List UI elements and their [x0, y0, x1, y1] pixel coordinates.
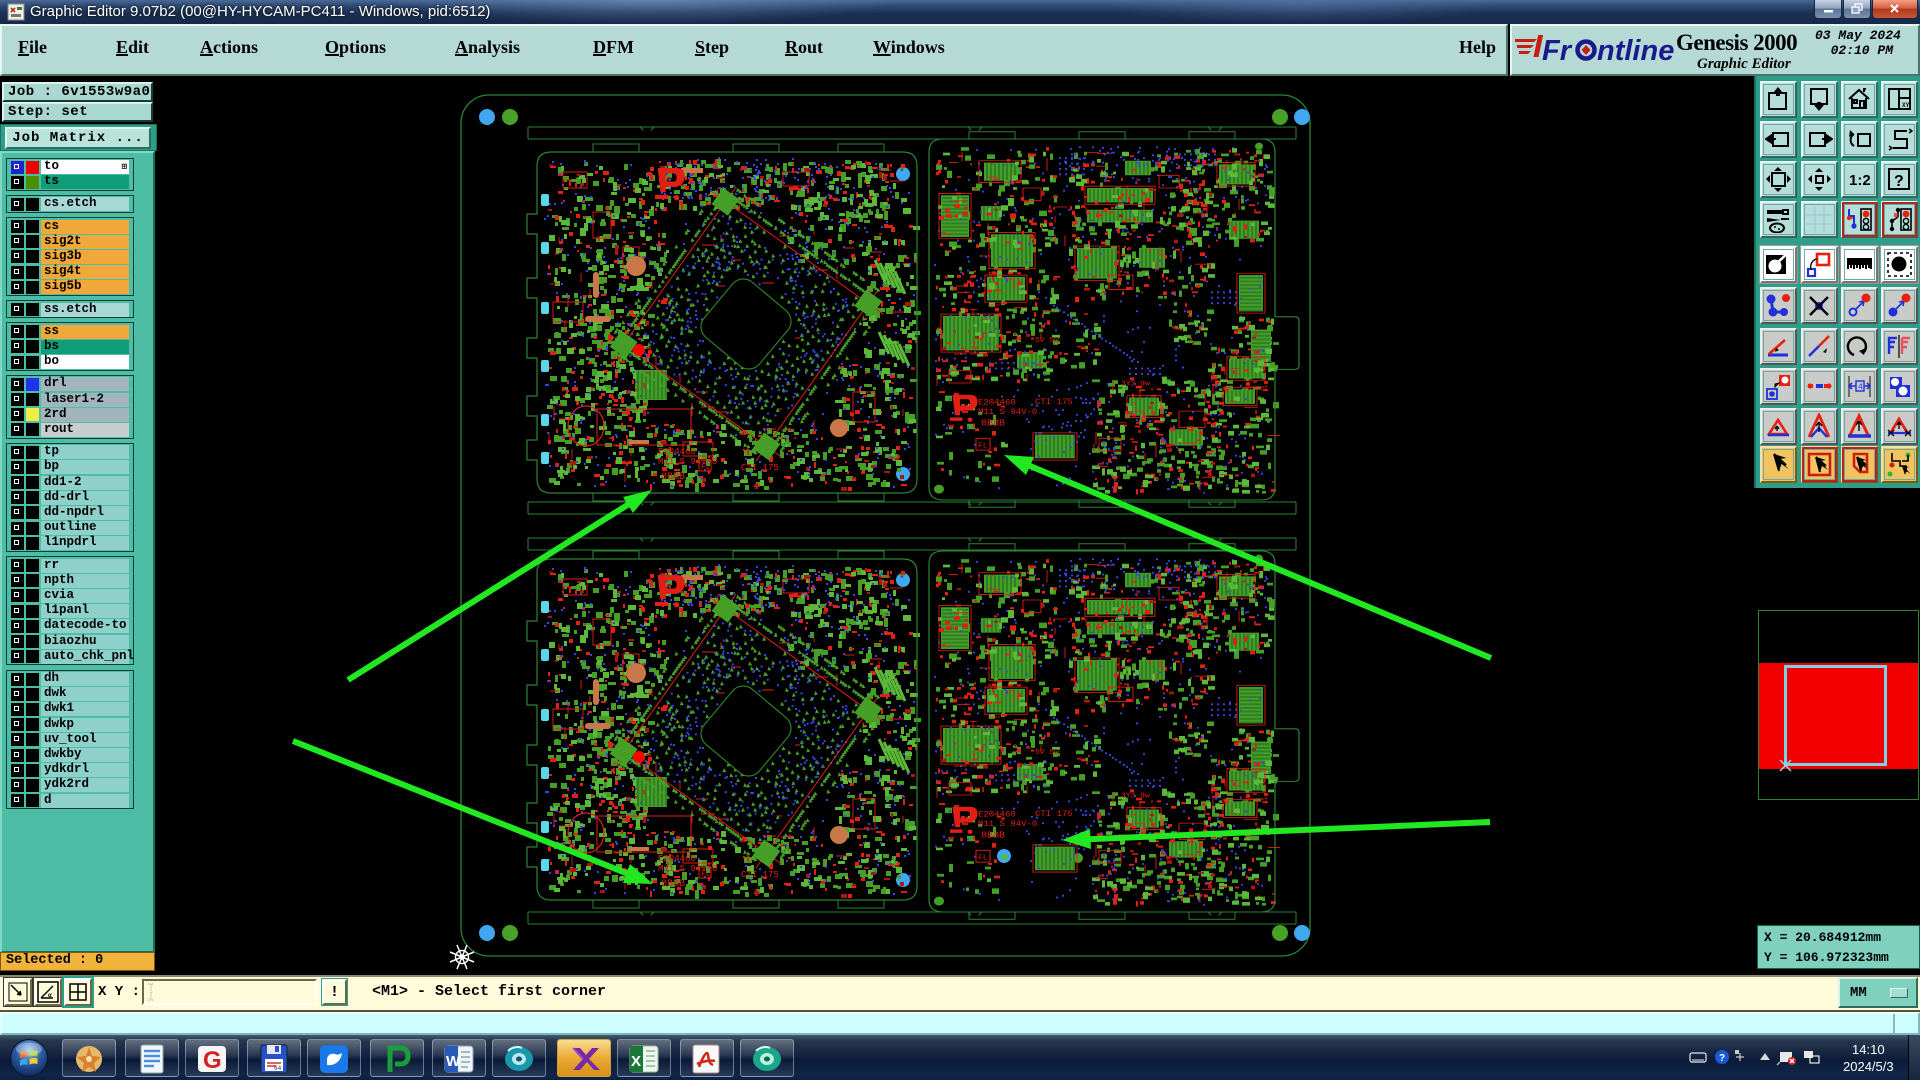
svg-text:G: G — [203, 1047, 222, 1074]
svg-text:W: W — [446, 1053, 461, 1070]
svg-text:XY: XY — [1902, 102, 1910, 109]
svg-text:?: ? — [1719, 1053, 1725, 1064]
svg-text:1:2: 1:2 — [1849, 172, 1871, 189]
svg-text:ntline: ntline — [1597, 35, 1674, 67]
svg-text:α: α — [48, 992, 52, 999]
svg-text:X: X — [631, 1053, 641, 1070]
svg-text:64: 64 — [274, 1065, 282, 1072]
svg-text:?: ? — [1894, 173, 1904, 190]
svg-text:4: 4 — [1858, 383, 1863, 392]
svg-text:Fr: Fr — [1542, 35, 1573, 67]
